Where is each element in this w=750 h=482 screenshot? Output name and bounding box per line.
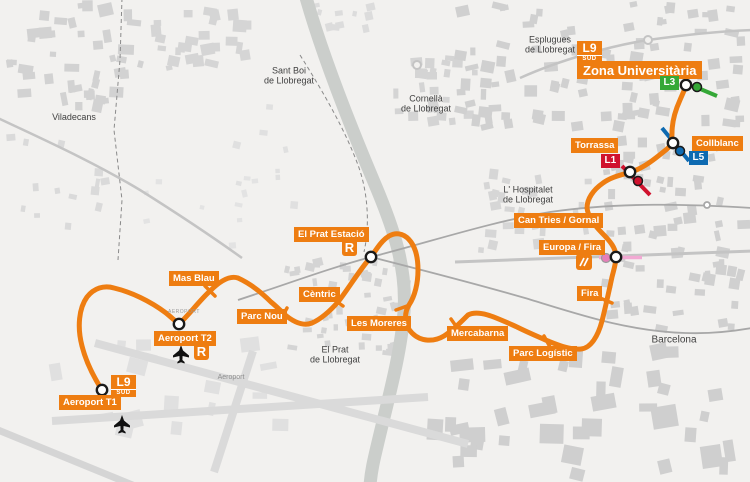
- place-label-sant-boi: Sant Boi de Llobregat: [264, 66, 314, 87]
- place-label-el-prat: El Prat de Llobregat: [310, 345, 360, 366]
- l9-sud-map: Zona UniversitàriaCollblancTorrassaCan T…: [0, 0, 750, 482]
- station-label-fira[interactable]: Fira: [577, 286, 602, 301]
- station-label-europa-fira[interactable]: Europa / Fira: [539, 240, 605, 255]
- station-label-collblanc[interactable]: Collblanc: [692, 136, 743, 151]
- place-label-aeroport: Aeroport: [218, 374, 245, 382]
- station-label-centric[interactable]: Cèntric: [299, 287, 340, 302]
- line-badge-sub: SUD: [111, 389, 136, 397]
- station-label-zona-universitaria[interactable]: Zona Universitària: [577, 61, 702, 79]
- rodalies-badge-r-aeroport-t2[interactable]: R: [194, 343, 209, 360]
- station-label-can-tries-gornal[interactable]: Can Tries / Gornal: [514, 213, 603, 228]
- connection-badge-l1[interactable]: L1: [601, 154, 620, 168]
- station-label-torrassa[interactable]: Torrassa: [571, 138, 618, 153]
- station-label-parc-nou[interactable]: Parc Nou: [237, 309, 287, 324]
- station-label-el-prat-estacio[interactable]: El Prat Estació: [294, 227, 369, 242]
- place-label-cornella: Cornellà de Llobregat: [401, 94, 451, 115]
- place-label-hospitalet: L' Hospitalet de Llobregat: [503, 185, 553, 206]
- station-label-aeroport-t1[interactable]: Aeroport T1: [59, 395, 121, 410]
- line-badge-l9-sud-t1[interactable]: L9SUD: [111, 375, 136, 397]
- place-label-viladecans: Viladecans: [52, 112, 96, 122]
- station-label-les-moreres[interactable]: Les Moreres: [347, 316, 411, 331]
- connection-badge-l3[interactable]: L3: [660, 76, 679, 90]
- line-badge-line: L9: [111, 375, 136, 389]
- station-label-mercabarna[interactable]: Mercabarna: [447, 326, 508, 341]
- line-badge-line: L9: [577, 41, 602, 55]
- connection-badge-l5[interactable]: L5: [689, 151, 708, 165]
- station-label-parc-logistic[interactable]: Parc Logístic: [509, 346, 577, 361]
- place-label-esplugues: Esplugues de Llobregat: [525, 35, 575, 56]
- line-badge-l9-sud-zona[interactable]: L9SUD: [577, 41, 602, 63]
- place-label-aeroport-tiny: AEROPORT: [168, 310, 200, 316]
- place-label-barcelona: Barcelona: [651, 334, 696, 346]
- line-badge-sub: SUD: [577, 55, 602, 63]
- rodalies-badge-r-el-prat[interactable]: R: [342, 239, 357, 256]
- labels-layer: Zona UniversitàriaCollblancTorrassaCan T…: [0, 0, 750, 482]
- station-label-mas-blau[interactable]: Mas Blau: [169, 271, 219, 286]
